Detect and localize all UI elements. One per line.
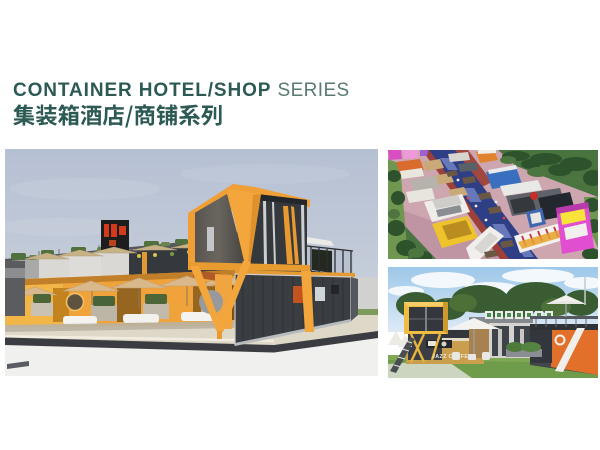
svg-text:JAZZ COFFE: JAZZ COFFE xyxy=(432,354,468,360)
